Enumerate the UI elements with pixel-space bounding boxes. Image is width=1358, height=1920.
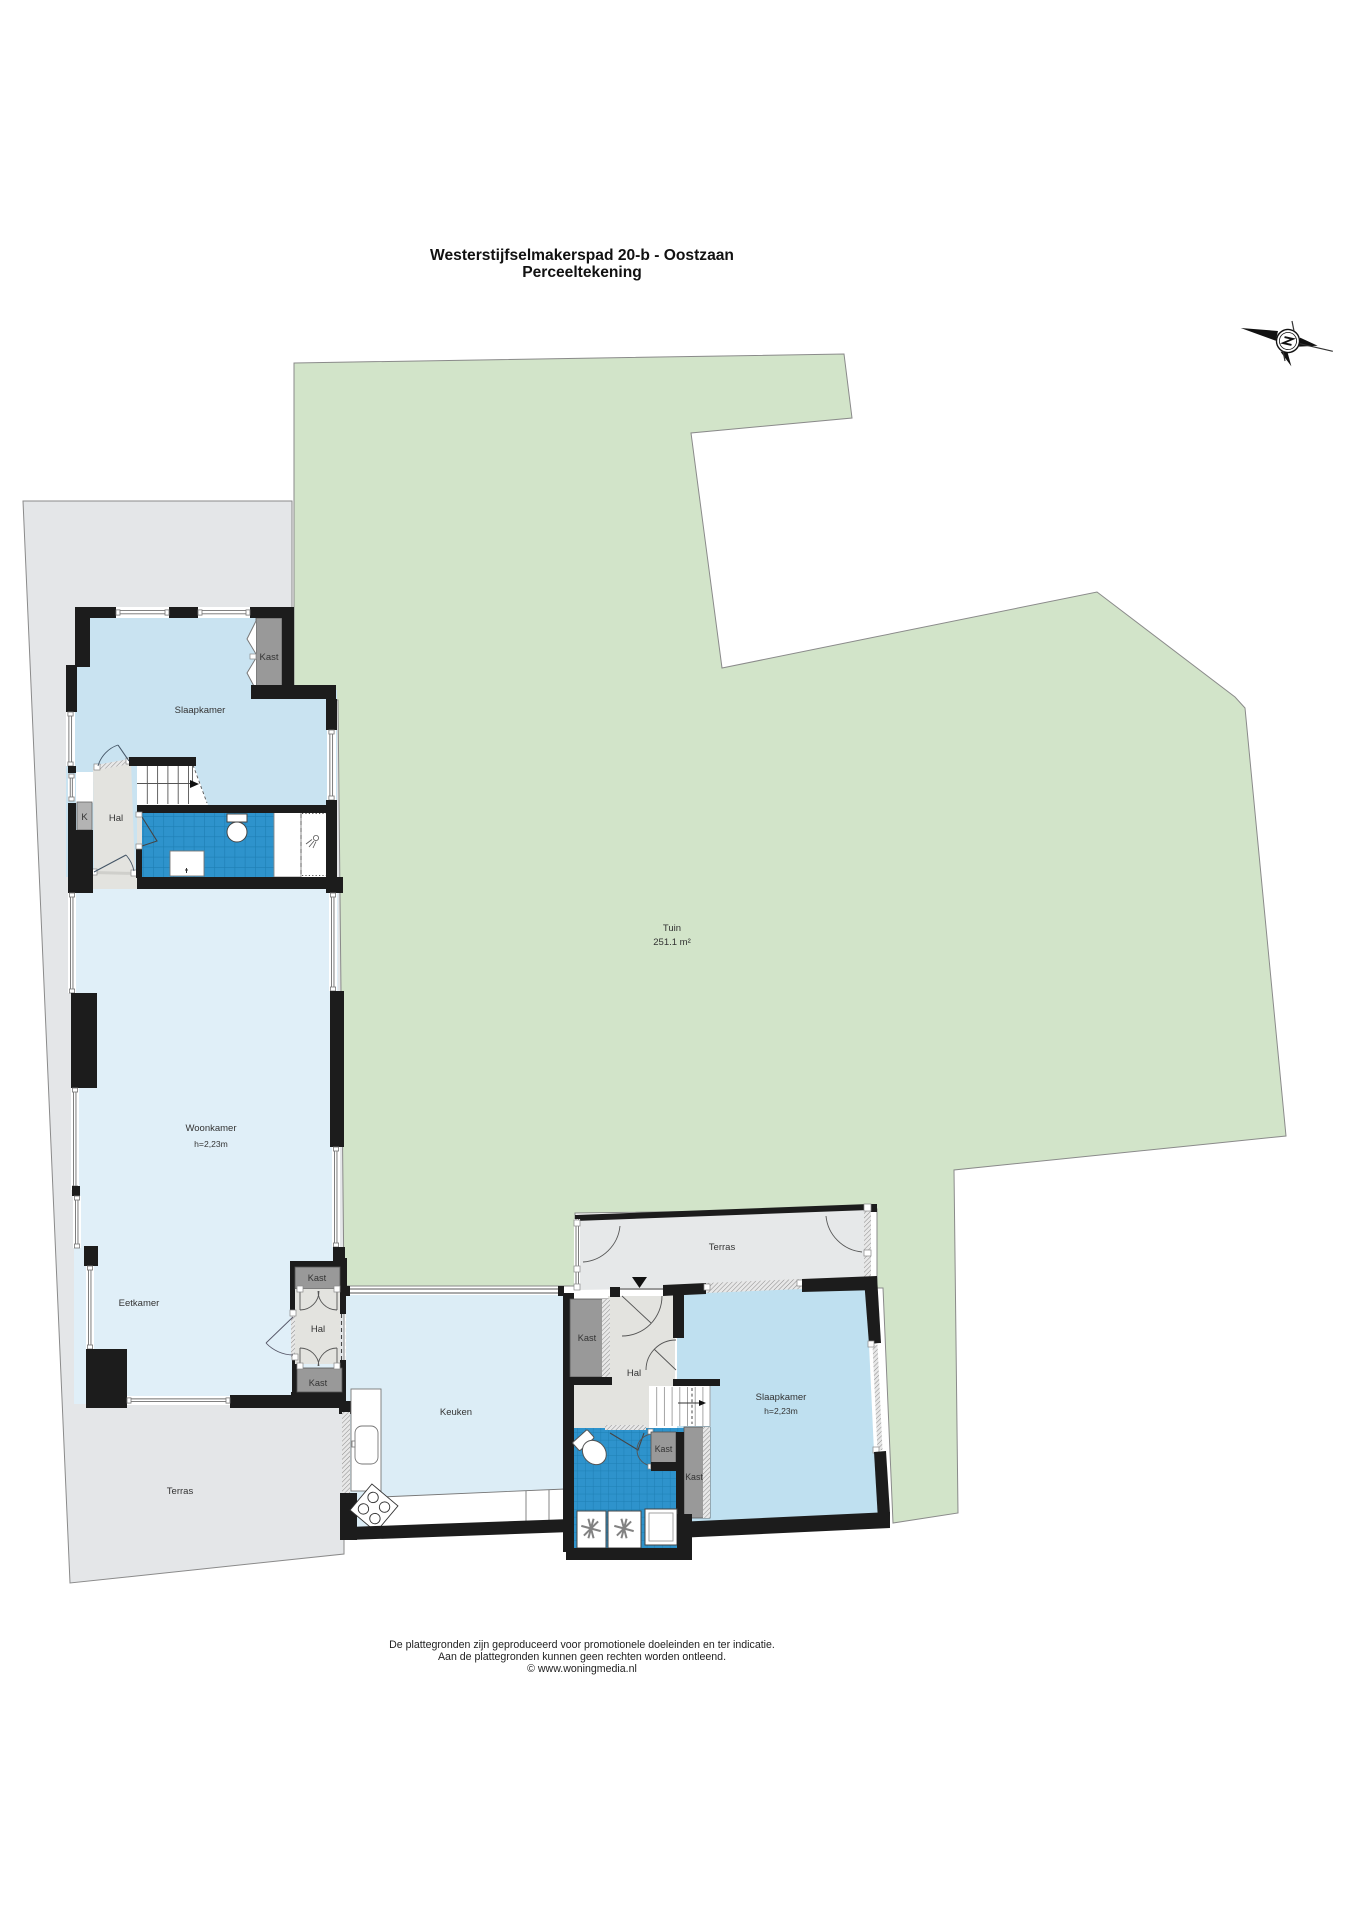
svg-text:Kast: Kast	[308, 1273, 327, 1283]
svg-text:© www.woningmedia.nl: © www.woningmedia.nl	[527, 1663, 637, 1675]
svg-text:Kast: Kast	[259, 652, 278, 663]
svg-text:K: K	[81, 812, 88, 823]
svg-text:Westerstijfselmakerspad 20-b -: Westerstijfselmakerspad 20-b - Oostzaan	[430, 247, 734, 264]
svg-text:Slaapkamer: Slaapkamer	[756, 1392, 807, 1403]
svg-text:Kast: Kast	[309, 1378, 328, 1388]
svg-text:Hal: Hal	[109, 813, 123, 824]
svg-text:Keuken: Keuken	[440, 1407, 472, 1418]
svg-text:De plattegronden zijn geproduc: De plattegronden zijn geproduceerd voor …	[389, 1639, 775, 1651]
svg-text:Slaapkamer: Slaapkamer	[175, 705, 226, 716]
svg-text:Kast: Kast	[655, 1444, 673, 1454]
svg-text:Woonkamer: Woonkamer	[185, 1123, 236, 1134]
svg-text:251.1 m²: 251.1 m²	[653, 937, 691, 948]
svg-text:Eetkamer: Eetkamer	[119, 1298, 160, 1309]
svg-text:Hal: Hal	[311, 1324, 325, 1335]
svg-text:Kast: Kast	[578, 1333, 597, 1343]
svg-text:Tuin: Tuin	[663, 923, 681, 934]
svg-text:Hal: Hal	[627, 1368, 641, 1379]
svg-text:Kast: Kast	[685, 1472, 703, 1482]
svg-text:Terras: Terras	[709, 1242, 736, 1253]
svg-text:Aan de plattegronden kunnen ge: Aan de plattegronden kunnen geen rechten…	[438, 1651, 726, 1663]
svg-text:h=2,23m: h=2,23m	[194, 1139, 228, 1149]
svg-text:h=2,23m: h=2,23m	[764, 1406, 798, 1416]
svg-text:Terras: Terras	[167, 1486, 194, 1497]
svg-text:Perceeltekening: Perceeltekening	[522, 264, 642, 281]
